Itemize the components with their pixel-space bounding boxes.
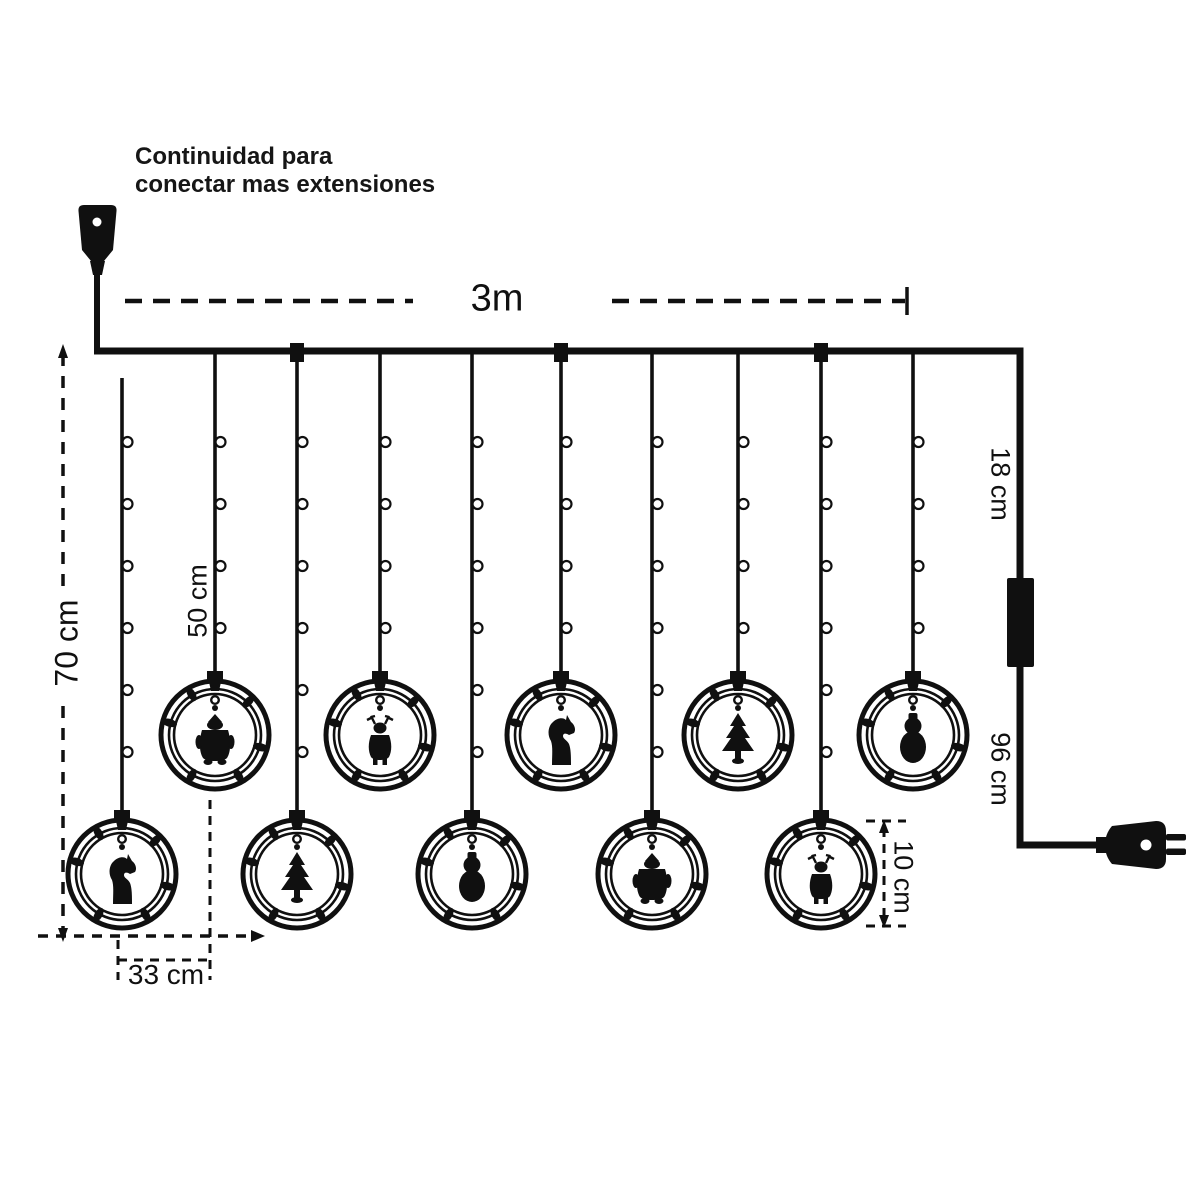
led-bulb-icon — [653, 623, 663, 633]
dim-label-70cm: 70 cm — [49, 589, 86, 696]
led-bulb-icon — [298, 561, 308, 571]
arrow-up-icon — [58, 344, 68, 358]
dim-label-96cm: 96 cm — [985, 732, 1016, 806]
led-bulb-icon — [914, 561, 924, 571]
power-plug-icon — [1096, 821, 1186, 869]
rocking-horse-icon — [110, 854, 136, 904]
wreath-ring — [161, 671, 269, 789]
santa-icon — [196, 714, 235, 765]
drop-string — [243, 343, 351, 928]
led-bulb-icon — [653, 437, 663, 447]
arrow-right-icon — [251, 930, 265, 942]
chain-link-icon — [211, 696, 219, 704]
dim-label-50cm: 50 cm — [183, 564, 214, 638]
drop-string — [418, 352, 526, 928]
dim-label-33cm: 33 cm — [128, 959, 204, 991]
christmas-tree-icon — [281, 852, 313, 903]
drop-string — [507, 343, 615, 789]
drop-string — [684, 352, 792, 789]
led-bulb-icon — [739, 437, 749, 447]
led-bulb-icon — [562, 623, 572, 633]
chain-link-icon — [648, 835, 656, 843]
led-bulb-icon — [822, 685, 832, 695]
led-bulb-icon — [298, 747, 308, 757]
ring-hanger-icon — [905, 671, 921, 682]
led-bulb-icon — [473, 685, 483, 695]
led-bulb-icon — [216, 437, 226, 447]
ring-hanger-icon — [464, 810, 480, 821]
led-bulb-icon — [653, 685, 663, 695]
led-bulb-icon — [381, 561, 391, 571]
led-bulb-icon — [381, 499, 391, 509]
led-bulb-icon — [381, 437, 391, 447]
chain-link-icon — [557, 696, 565, 704]
led-bulb-icon — [739, 499, 749, 509]
dim-label-10cm: 10 cm — [888, 840, 919, 914]
drop-string — [767, 343, 875, 928]
drop-string — [859, 352, 967, 789]
controller-box — [1007, 578, 1034, 667]
dim-label-3m: 3m — [471, 278, 524, 321]
chain-link-icon — [293, 835, 301, 843]
extension-socket-icon — [78, 205, 116, 275]
ring-hanger-icon — [372, 671, 388, 682]
led-bulb-icon — [216, 499, 226, 509]
led-bulb-icon — [739, 561, 749, 571]
wreath-ring — [68, 810, 176, 928]
reindeer-icon — [367, 716, 393, 765]
led-bulb-icon — [473, 561, 483, 571]
led-bulb-icon — [123, 685, 133, 695]
dim-label-18cm: 18 cm — [985, 447, 1016, 521]
drop-string — [598, 352, 706, 928]
led-bulb-icon — [298, 623, 308, 633]
led-bulb-icon — [822, 561, 832, 571]
led-bulb-icon — [123, 747, 133, 757]
extension-note: Continuidad para conectar mas extensione… — [135, 143, 435, 199]
led-bulb-icon — [914, 437, 924, 447]
ring-hanger-icon — [289, 810, 305, 821]
drop-string — [326, 352, 434, 789]
wire-tap-connector — [814, 343, 828, 362]
led-bulb-icon — [381, 623, 391, 633]
ring-hanger-icon — [553, 671, 569, 682]
chain-link-icon — [734, 696, 742, 704]
wreath-ring — [767, 810, 875, 928]
santa-icon — [633, 853, 672, 904]
wreath-ring — [598, 810, 706, 928]
ring-hanger-icon — [730, 671, 746, 682]
drop-string — [161, 352, 269, 789]
led-bulb-icon — [473, 437, 483, 447]
led-bulb-icon — [822, 623, 832, 633]
ring-hanger-icon — [207, 671, 223, 682]
extension-note-line2: conectar mas extensiones — [135, 171, 435, 199]
led-bulb-icon — [562, 437, 572, 447]
led-bulb-icon — [123, 437, 133, 447]
chain-link-icon — [909, 696, 917, 704]
wreath-ring — [507, 671, 615, 789]
led-bulb-icon — [822, 499, 832, 509]
wreath-ring — [859, 671, 967, 789]
led-bulb-icon — [216, 623, 226, 633]
led-bulb-icon — [822, 437, 832, 447]
led-bulb-icon — [473, 499, 483, 509]
chain-link-icon — [468, 835, 476, 843]
extension-note-line1: Continuidad para — [135, 143, 435, 171]
wire-tap-connector — [290, 343, 304, 362]
led-bulb-icon — [653, 561, 663, 571]
chain-link-icon — [118, 835, 126, 843]
wire-tap-connector — [554, 343, 568, 362]
led-bulb-icon — [914, 499, 924, 509]
ring-hanger-icon — [644, 810, 660, 821]
chain-link-icon — [376, 696, 384, 704]
snowman-icon — [459, 852, 485, 902]
ring-hanger-icon — [114, 810, 130, 821]
led-bulb-icon — [473, 747, 483, 757]
led-bulb-icon — [562, 499, 572, 509]
led-bulb-icon — [123, 623, 133, 633]
product-diagram: Continuidad para conectar mas extensione… — [0, 0, 1200, 1200]
led-bulb-icon — [653, 499, 663, 509]
led-bulb-icon — [123, 561, 133, 571]
led-bulb-icon — [562, 561, 572, 571]
led-bulb-icon — [123, 499, 133, 509]
chain-link-icon — [817, 835, 825, 843]
wreath-ring — [418, 810, 526, 928]
wreath-ring — [326, 671, 434, 789]
led-bulb-icon — [298, 437, 308, 447]
led-bulb-icon — [914, 623, 924, 633]
rocking-horse-icon — [549, 715, 575, 765]
led-bulb-icon — [298, 499, 308, 509]
christmas-tree-icon — [722, 713, 754, 764]
wreath-ring — [243, 810, 351, 928]
led-bulb-icon — [822, 747, 832, 757]
reindeer-icon — [808, 855, 834, 904]
led-bulb-icon — [473, 623, 483, 633]
led-bulb-icon — [653, 747, 663, 757]
snowman-icon — [900, 713, 926, 763]
wreath-ring — [684, 671, 792, 789]
led-bulb-icon — [739, 623, 749, 633]
led-bulb-icon — [216, 561, 226, 571]
led-bulb-icon — [298, 685, 308, 695]
ring-hanger-icon — [813, 810, 829, 821]
